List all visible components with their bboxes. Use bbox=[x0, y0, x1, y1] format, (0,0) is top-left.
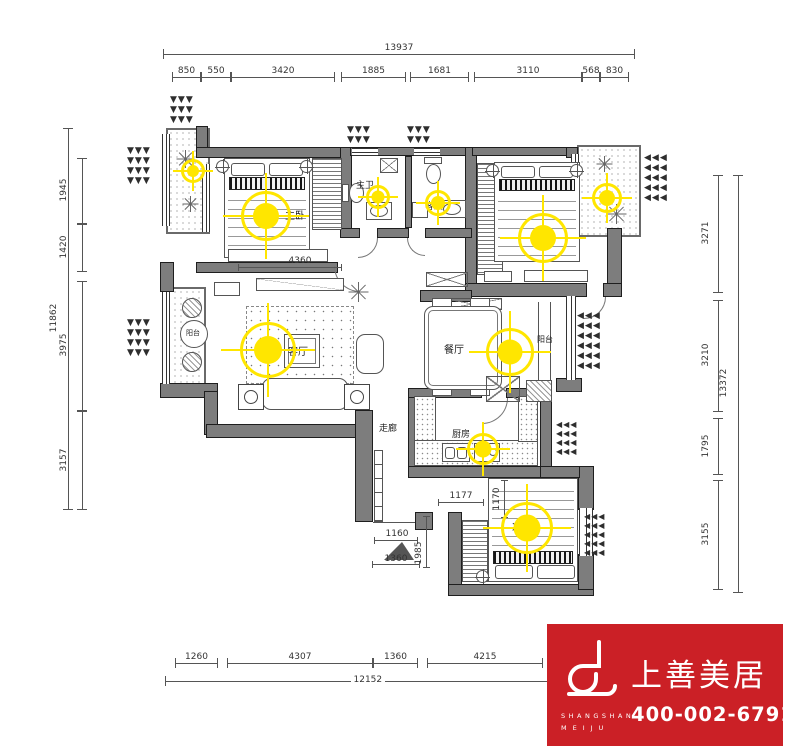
dim-label: 12152 bbox=[351, 675, 386, 685]
dim-segments-left: 1945 1420 3975 3157 bbox=[74, 158, 90, 510]
dim-label: 3271 bbox=[701, 203, 711, 263]
wall-segment bbox=[425, 228, 472, 238]
kitchen-sink bbox=[442, 443, 470, 462]
dim-line bbox=[438, 502, 484, 503]
wall-segment bbox=[465, 147, 477, 291]
toilet-tank bbox=[342, 184, 349, 202]
corridor-cabinet bbox=[374, 450, 383, 522]
balcony-chair bbox=[182, 298, 202, 318]
master-wardrobe bbox=[312, 158, 342, 230]
dim-label: 550 bbox=[201, 66, 231, 76]
dim-label: 830 bbox=[600, 66, 629, 76]
plant-icon bbox=[348, 282, 368, 302]
dim-label: 850 bbox=[172, 66, 201, 76]
dim-label: 1795 bbox=[701, 416, 711, 476]
dim-total-top: 13937 bbox=[163, 46, 635, 62]
logo-brand-en: SHANGSHAN bbox=[561, 712, 634, 720]
shower-shelf bbox=[380, 158, 398, 173]
dim-label: 3155 bbox=[701, 504, 711, 564]
kitchen-counter bbox=[518, 396, 538, 442]
dim-label: 3210 bbox=[701, 325, 711, 385]
dim-segments-bottom: 1260 4307 1360 4215 bbox=[175, 655, 543, 671]
dim-label: 1681 bbox=[410, 66, 469, 76]
wall-segment bbox=[448, 512, 462, 594]
decor-box bbox=[214, 282, 240, 296]
wall-segment bbox=[415, 512, 433, 530]
curtain-end-icon bbox=[476, 570, 489, 583]
entry-threshold bbox=[373, 522, 415, 523]
dim-label: 1985 bbox=[414, 538, 424, 568]
wall-segment bbox=[578, 466, 594, 510]
curtain-end-icon bbox=[216, 160, 229, 173]
speaker-box bbox=[238, 384, 264, 410]
shoe-cabinet bbox=[426, 272, 468, 287]
dim-label: 3157 bbox=[59, 430, 69, 490]
dim-label: 3420 bbox=[231, 66, 335, 76]
room-label-corridor: 走廊 bbox=[379, 421, 397, 434]
dim-line bbox=[238, 267, 342, 268]
speaker-box bbox=[344, 384, 370, 410]
wall-segment bbox=[465, 283, 587, 297]
wall-segment bbox=[340, 228, 360, 238]
dim-segments-right: 3271 3210 1795 3155 bbox=[710, 175, 726, 590]
window bbox=[352, 148, 378, 156]
curtain-end-icon bbox=[570, 164, 583, 177]
window bbox=[414, 148, 440, 156]
logo-monogram-icon bbox=[557, 636, 623, 706]
dim-label: 3975 bbox=[59, 315, 69, 375]
wall-segment bbox=[377, 228, 409, 238]
room-label-balcony-left: 阳台 bbox=[186, 328, 200, 338]
dim-label: 1160 bbox=[382, 529, 412, 539]
curtain-end-icon bbox=[300, 160, 313, 173]
wall-segment bbox=[603, 283, 622, 297]
dim-label: 4215 bbox=[427, 652, 543, 662]
arrow-cluster: ▼▼▼▼▼▼ bbox=[407, 125, 431, 145]
curtain-end-icon bbox=[486, 164, 499, 177]
window bbox=[162, 292, 170, 384]
dim-label: 1420 bbox=[59, 217, 69, 277]
window bbox=[162, 134, 170, 226]
dim-segments-top: 850 550 3420 1885 1681 3110 568 830 bbox=[172, 69, 629, 85]
fridge bbox=[486, 376, 520, 402]
wall-segment bbox=[556, 378, 582, 392]
arrow-cluster: ▼▼▼▼▼▼▼▼▼ bbox=[170, 95, 194, 125]
company-logo: 上善美居 SHANGSHAN MEIJU 400-002-6791 bbox=[547, 624, 783, 746]
arrow-cluster: ◀◀◀◀◀◀◀◀◀◀◀◀◀◀◀ bbox=[644, 153, 668, 203]
arrow-cluster: ▼▼▼▼▼▼▼▼▼▼▼▼ bbox=[127, 146, 151, 186]
dim-line bbox=[374, 540, 418, 541]
wall-segment bbox=[408, 466, 554, 478]
wall-segment bbox=[578, 554, 594, 590]
window bbox=[566, 296, 576, 380]
wall-segment bbox=[206, 424, 368, 438]
wall-segment bbox=[448, 584, 594, 596]
room-label-balcony-right: 阳台 bbox=[537, 334, 553, 345]
arrow-cluster: ◀◀◀◀◀◀◀◀◀◀◀◀◀◀◀ bbox=[584, 512, 605, 557]
room-label-kitchen: 厨房 bbox=[452, 427, 470, 440]
dim-label: 568 bbox=[582, 66, 600, 76]
balcony-chair bbox=[182, 352, 202, 372]
plant-icon bbox=[596, 156, 612, 172]
dim-line bbox=[426, 516, 427, 568]
tv-cabinet bbox=[256, 278, 344, 291]
wall-segment bbox=[160, 262, 174, 292]
dim-label: 1885 bbox=[341, 66, 406, 76]
logo-phone: 400-002-6791 bbox=[631, 703, 795, 726]
dim-label: 3110 bbox=[474, 66, 582, 76]
arrow-cluster: ◀◀◀◀◀◀◀◀◀◀◀◀◀◀◀◀◀◀ bbox=[577, 311, 601, 371]
arrow-cluster: ▼▼▼▼▼▼▼▼▼▼▼▼ bbox=[127, 318, 151, 358]
arrow-cluster: ▼▼▼▼▼▼ bbox=[347, 125, 371, 145]
logo-brand-en: MEIJU bbox=[561, 724, 609, 732]
wall-segment bbox=[196, 147, 348, 158]
bedroom2-dresser bbox=[524, 270, 588, 282]
dim-label: 13937 bbox=[163, 43, 635, 53]
room-label-dining: 餐厅 bbox=[444, 341, 464, 356]
floor-plan-drawing: 13937 850 550 3420 1885 1681 3110 568 83… bbox=[0, 0, 800, 752]
plant-icon bbox=[182, 196, 198, 212]
armchair bbox=[356, 334, 384, 374]
appliance-cabinet bbox=[526, 380, 552, 402]
door-arc bbox=[407, 238, 425, 256]
dim-label: 4307 bbox=[227, 652, 373, 662]
door-arc bbox=[358, 238, 378, 258]
dim-label: 1360 bbox=[381, 554, 411, 564]
dim-chain-top: 13937 bbox=[163, 46, 635, 62]
dim-label: 1170 bbox=[492, 484, 502, 514]
logo-brand-text: 上善美居 bbox=[631, 650, 779, 695]
arrow-cluster: ◀◀◀◀◀◀◀◀◀◀◀◀ bbox=[556, 420, 577, 456]
sofa bbox=[262, 378, 348, 410]
toilet-tank bbox=[424, 157, 442, 164]
wall-segment bbox=[355, 410, 373, 522]
dim-label: 4360 bbox=[278, 256, 322, 266]
dim-total-right: 13372 bbox=[730, 175, 746, 593]
dim-label: 1945 bbox=[59, 160, 69, 220]
wall-segment bbox=[472, 147, 576, 156]
dim-label: 11862 bbox=[49, 288, 59, 348]
dim-label: 1360 bbox=[373, 652, 418, 662]
wall-segment bbox=[405, 156, 412, 228]
dim-label: 1177 bbox=[446, 491, 476, 501]
dim-label: 1260 bbox=[175, 652, 218, 662]
dim-line bbox=[372, 564, 420, 565]
small-label-box bbox=[484, 271, 512, 282]
wall-segment bbox=[540, 466, 580, 478]
